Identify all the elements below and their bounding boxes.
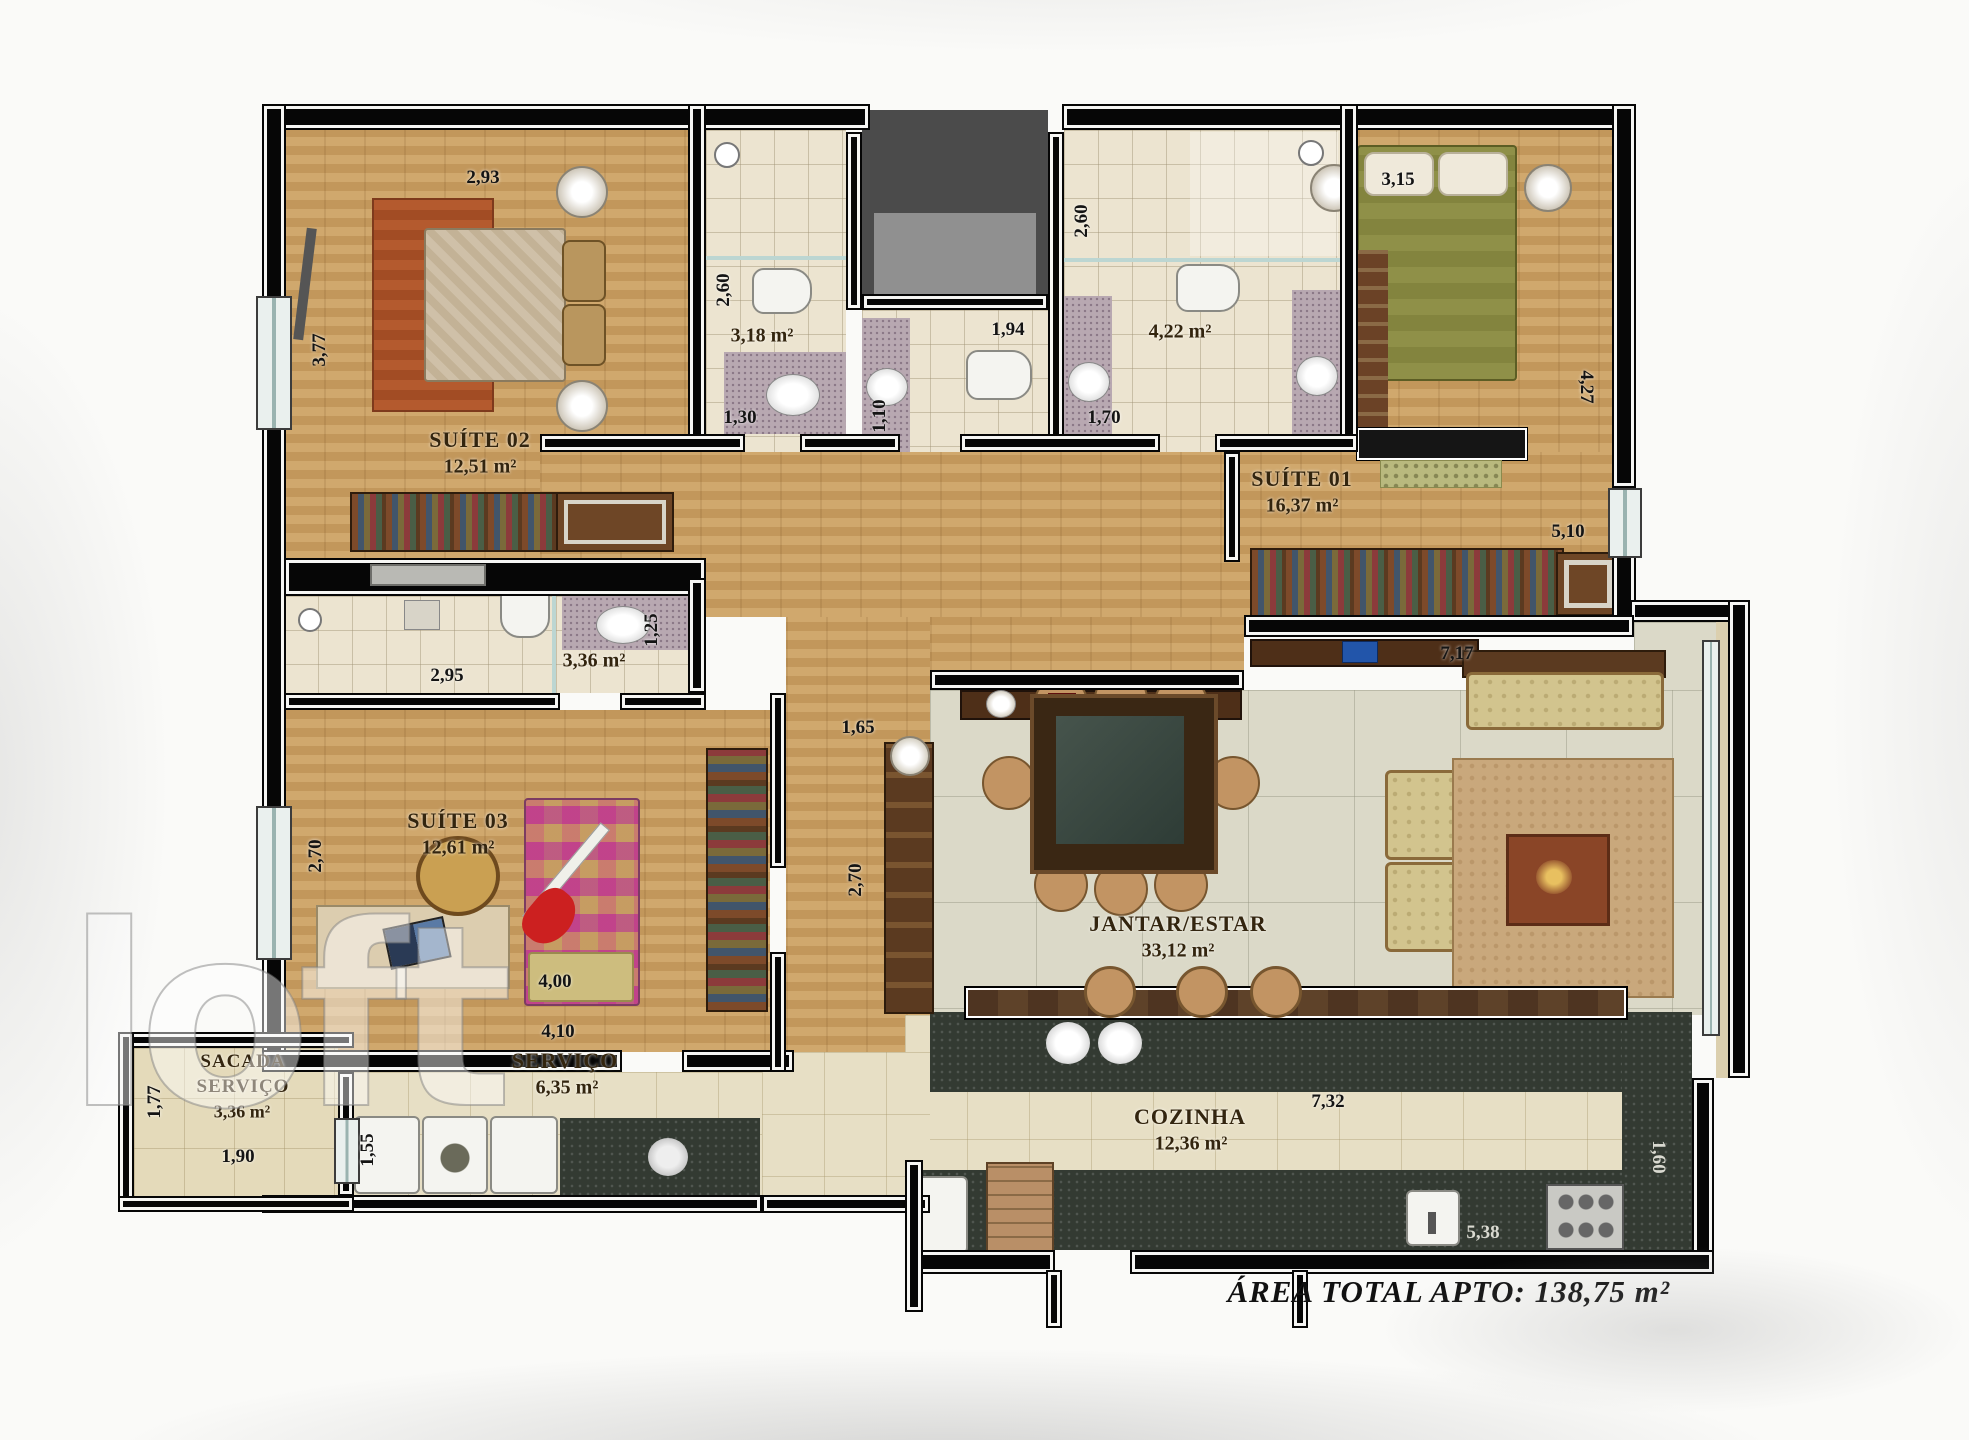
closet-shelves <box>1556 552 1620 616</box>
room-label-sacada: SACADA SERVIÇO <box>197 1049 290 1099</box>
dim-sacada-depth: 1,77 <box>144 1085 166 1118</box>
bowl <box>986 690 1016 718</box>
toilet <box>752 268 812 314</box>
room-area-kitchen: 12,36 m² <box>1155 1133 1228 1156</box>
shower-glass <box>1064 258 1340 262</box>
dim-suite01-depth: 4,27 <box>1575 370 1597 403</box>
dim-suite01-entry: 3,15 <box>1381 169 1414 191</box>
dining-chair <box>982 756 1036 810</box>
shower-control <box>404 600 440 630</box>
bench-rug <box>1380 460 1502 488</box>
wall <box>118 1032 354 1048</box>
shelf <box>370 564 486 586</box>
dim-suite02-depth: 3,77 <box>309 333 331 366</box>
side-table <box>1524 164 1572 212</box>
shower-head <box>1298 140 1324 166</box>
wall <box>770 693 786 868</box>
bath-area-suite01: 4,22 m² <box>1149 321 1212 344</box>
bath-area-suite03: 3,36 m² <box>563 650 626 673</box>
dim-hall-depth: 2,70 <box>845 863 867 896</box>
dim-bath01-depth: 2,60 <box>1071 204 1093 237</box>
sink <box>1296 356 1338 396</box>
bar-stool <box>1084 966 1136 1018</box>
toilet <box>966 350 1032 400</box>
island-sink <box>1098 1022 1142 1064</box>
wall <box>1130 1250 1714 1274</box>
shower-glass <box>706 256 846 260</box>
wall <box>770 952 786 1072</box>
washer <box>422 1116 488 1194</box>
kitchen-column <box>1622 1012 1692 1252</box>
room-area-suite02: 12,51 m² <box>444 456 517 479</box>
dim-lavabo-depth: 1,94 <box>991 319 1024 341</box>
dim-bath01-width: 1,70 <box>1087 407 1120 429</box>
magazine-blue <box>1342 641 1378 663</box>
dim-lavabo-width: 1,10 <box>869 399 891 432</box>
wall <box>1612 104 1636 488</box>
hall-strip-floor <box>930 617 1244 670</box>
room-label-suite02: SUÍTE 02 <box>429 427 531 453</box>
wall <box>800 434 900 452</box>
dim-sacada-width: 1,90 <box>221 1146 254 1168</box>
wall <box>118 1032 134 1212</box>
dim-bath02-width: 1,30 <box>723 407 756 429</box>
dim-hall-width: 1,65 <box>841 717 874 739</box>
wall <box>620 693 706 710</box>
pillow <box>1438 152 1508 196</box>
wall <box>1048 132 1064 452</box>
closet-suite02 <box>350 492 560 552</box>
wall <box>284 558 706 596</box>
wall <box>930 670 1244 690</box>
room-label-suite03: SUÍTE 03 <box>407 808 509 834</box>
room-area-suite01: 16,37 m² <box>1266 495 1339 518</box>
wall <box>688 104 706 452</box>
window <box>256 296 292 430</box>
dim-suite03-width: 4,00 <box>538 971 571 993</box>
dim-bath03-depth: 1,25 <box>641 613 663 646</box>
centerpiece <box>1536 860 1572 894</box>
servico-sink <box>648 1138 688 1176</box>
dim-servico-entry: 1,55 <box>357 1133 379 1166</box>
dryer <box>490 1116 558 1194</box>
window <box>1702 640 1720 1036</box>
wall <box>862 294 1048 310</box>
sink <box>1068 362 1110 402</box>
wall <box>1215 434 1358 452</box>
sink <box>766 374 820 416</box>
window <box>256 806 292 960</box>
dim-servico-width: 4,10 <box>541 1021 574 1043</box>
wall <box>1244 615 1634 637</box>
dim-living-width: 7,17 <box>1440 643 1473 665</box>
wall <box>284 693 560 710</box>
dining-table-glass <box>1056 716 1184 844</box>
faucet <box>1428 1212 1436 1234</box>
shower-head <box>714 142 740 168</box>
bed-suite02 <box>424 228 566 382</box>
stove <box>1546 1184 1624 1250</box>
bar-stool <box>1250 966 1302 1018</box>
wall <box>846 132 862 310</box>
total-area-label: ÁREA TOTAL APTO: 138,75 m² <box>1048 1274 1670 1310</box>
wall <box>905 1160 923 1312</box>
bar-stool <box>1176 966 1228 1018</box>
shelf-unit <box>884 742 934 1014</box>
bath-area-suite02: 3,18 m² <box>731 325 794 348</box>
wall <box>1340 104 1358 452</box>
room-area-sacada: 3,36 m² <box>214 1102 270 1123</box>
dim-kitchen-width: 7,32 <box>1311 1091 1344 1113</box>
wall <box>262 104 870 130</box>
wall <box>118 1196 354 1212</box>
elevator-shaft-inner <box>874 213 1036 295</box>
dim-kitchen-depth: 1,60 <box>1647 1140 1669 1173</box>
room-area-living: 33,12 m² <box>1142 940 1215 963</box>
side-table <box>556 380 608 432</box>
headboard-cushion <box>562 304 606 366</box>
headboard-cushion <box>562 240 606 302</box>
brick-oven <box>986 1162 1054 1252</box>
wall <box>1224 452 1240 562</box>
wall <box>1728 600 1750 1078</box>
window <box>1608 488 1642 558</box>
shower-head <box>298 608 322 632</box>
tv-console <box>1357 428 1527 460</box>
dim-suite01-closet: 5,10 <box>1551 521 1584 543</box>
room-label-suite01: SUÍTE 01 <box>1251 466 1353 492</box>
room-area-servico: 6,35 m² <box>536 1077 599 1100</box>
floor-plan: SUÍTE 02 12,51 m² SUÍTE 01 16,37 m² SUÍT… <box>0 0 1969 1440</box>
toilet <box>1176 264 1240 312</box>
wall <box>960 434 1160 452</box>
dim-bath03-width: 2,95 <box>430 665 463 687</box>
vase <box>890 736 930 776</box>
dim-suite02-width: 2,93 <box>466 167 499 189</box>
closet-shelves <box>556 492 674 552</box>
shower-glass <box>552 596 556 693</box>
wall <box>905 1250 1055 1274</box>
wall <box>688 578 706 693</box>
wardrobe-suite03 <box>706 748 768 1012</box>
sofa <box>1466 672 1664 730</box>
bookshelf <box>1358 250 1388 430</box>
side-table <box>556 166 608 218</box>
closet-suite01 <box>1250 548 1564 622</box>
dim-kitchen-counter: 5,38 <box>1466 1222 1499 1244</box>
island-sink <box>1046 1022 1090 1064</box>
room-label-kitchen: COZINHA <box>1134 1104 1246 1130</box>
island-counter <box>930 1012 1622 1092</box>
wall <box>540 434 745 452</box>
room-label-living: JANTAR/ESTAR <box>1089 911 1266 937</box>
dim-suite03-depth: 2,70 <box>305 839 327 872</box>
wall <box>1692 1078 1714 1274</box>
dim-bath02-depth: 2,60 <box>713 273 735 306</box>
room-label-servico: SERVIÇO <box>512 1048 618 1074</box>
room-area-suite03: 12,61 m² <box>422 837 495 860</box>
